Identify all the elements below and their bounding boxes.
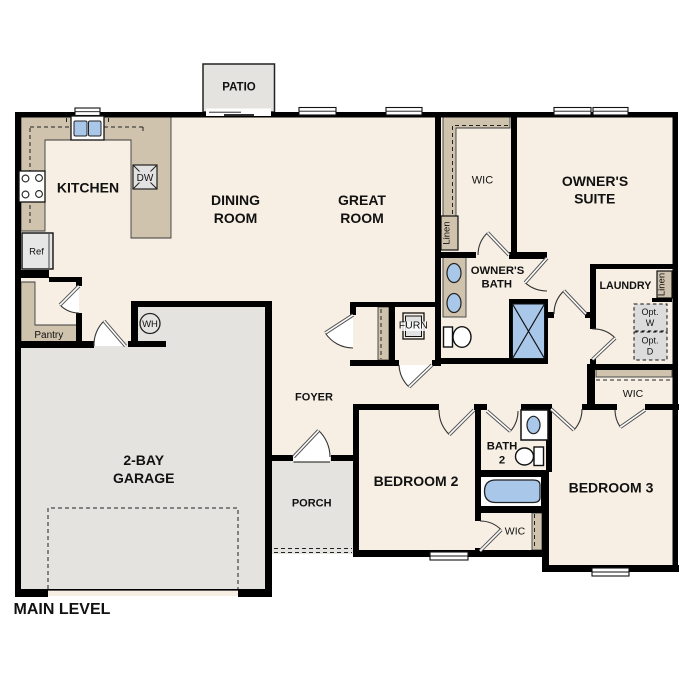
svg-text:OWNER'S: OWNER'S bbox=[562, 173, 628, 189]
svg-text:PORCH: PORCH bbox=[292, 498, 332, 510]
svg-text:Opt.: Opt. bbox=[641, 336, 658, 346]
svg-text:GARAGE: GARAGE bbox=[113, 470, 174, 486]
svg-text:MAIN LEVEL: MAIN LEVEL bbox=[14, 601, 111, 618]
svg-text:BEDROOM 3: BEDROOM 3 bbox=[569, 480, 654, 496]
svg-text:DW: DW bbox=[137, 173, 154, 184]
svg-text:GREAT: GREAT bbox=[338, 192, 386, 208]
svg-text:ROOM: ROOM bbox=[340, 210, 384, 226]
svg-text:Linen: Linen bbox=[442, 221, 453, 244]
svg-text:WIC: WIC bbox=[505, 526, 526, 538]
svg-text:WIC: WIC bbox=[623, 388, 644, 400]
svg-text:Opt.: Opt. bbox=[641, 307, 658, 317]
svg-text:DINING: DINING bbox=[211, 192, 260, 208]
svg-text:BATH: BATH bbox=[487, 441, 518, 453]
svg-text:ROOM: ROOM bbox=[214, 210, 258, 226]
svg-text:SUITE: SUITE bbox=[574, 191, 615, 207]
svg-text:W: W bbox=[646, 318, 655, 328]
svg-text:KITCHEN: KITCHEN bbox=[57, 180, 119, 196]
svg-text:OWNER'S: OWNER'S bbox=[471, 265, 525, 277]
svg-text:FOYER: FOYER bbox=[295, 391, 333, 403]
svg-text:BEDROOM 2: BEDROOM 2 bbox=[374, 473, 459, 489]
svg-text:FURN: FURN bbox=[399, 319, 428, 331]
svg-text:WH: WH bbox=[142, 319, 158, 330]
svg-text:Ref: Ref bbox=[29, 247, 44, 258]
svg-text:LAUNDRY: LAUNDRY bbox=[599, 280, 651, 292]
svg-text:WIC: WIC bbox=[472, 175, 493, 187]
svg-text:Pantry: Pantry bbox=[34, 330, 63, 341]
svg-text:2: 2 bbox=[499, 454, 505, 466]
svg-text:D: D bbox=[647, 347, 654, 357]
svg-text:2-BAY: 2-BAY bbox=[123, 452, 164, 468]
svg-text:Linen: Linen bbox=[657, 273, 668, 296]
svg-text:PATIO: PATIO bbox=[222, 81, 255, 93]
svg-text:BATH: BATH bbox=[482, 278, 513, 290]
